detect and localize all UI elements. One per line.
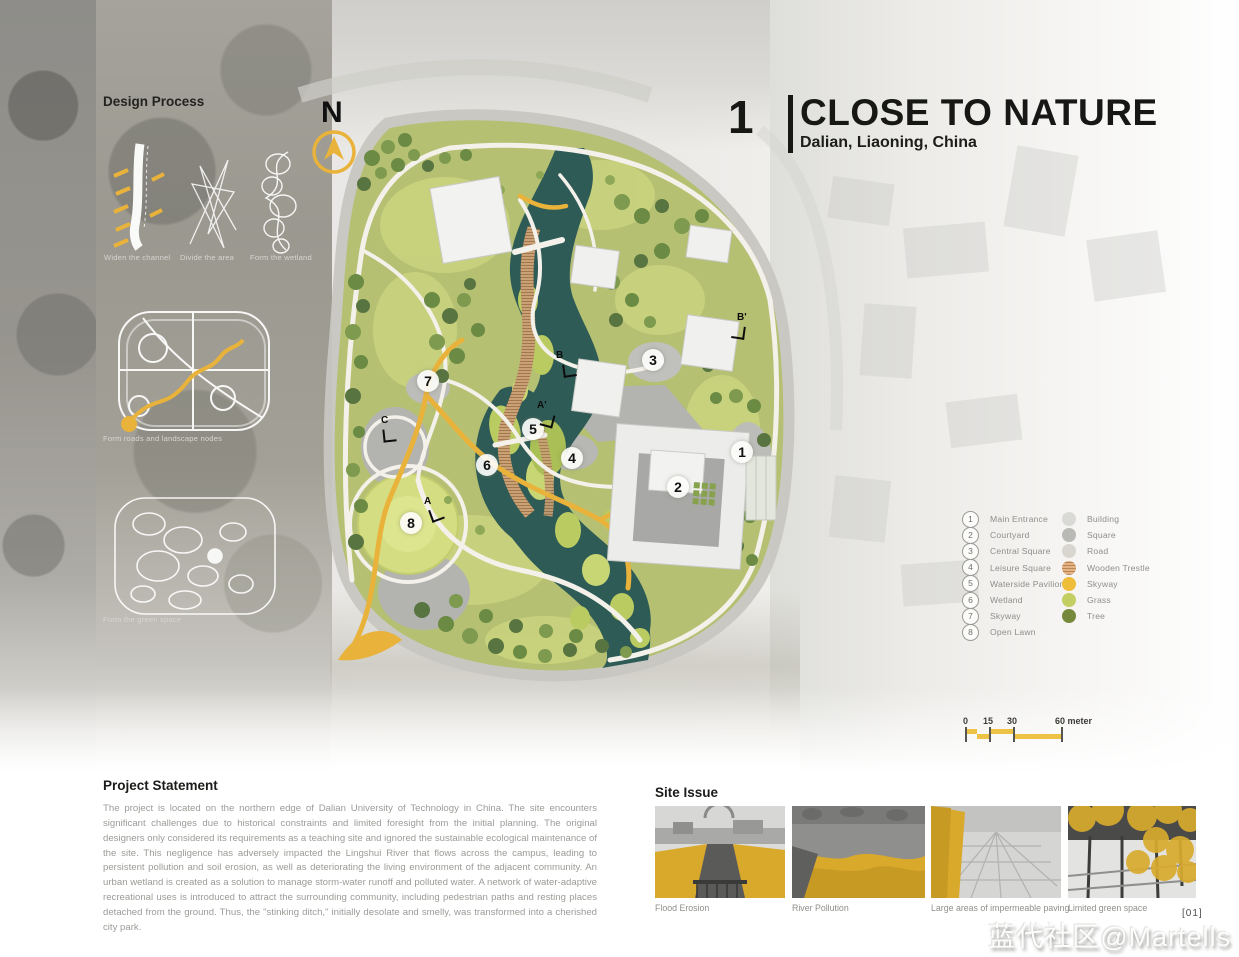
section-label-b-prime: B' bbox=[737, 312, 747, 323]
river-pollution-graphic bbox=[792, 806, 925, 898]
legend-item: 3Central Square bbox=[962, 543, 1064, 559]
scale-tick bbox=[965, 727, 967, 742]
watermark: 蓝代社区@Martells bbox=[988, 915, 1231, 954]
photo-flood-erosion bbox=[655, 806, 785, 898]
section-label-b: B bbox=[556, 350, 563, 361]
scale-segment bbox=[989, 729, 1013, 734]
map-marker-wetland: 6 bbox=[476, 454, 498, 476]
road-swatch bbox=[1062, 544, 1076, 558]
map-marker-central-square: 3 bbox=[642, 349, 664, 371]
legend-item: 1Main Entrance bbox=[962, 511, 1064, 527]
sketch-form-wetland bbox=[248, 146, 306, 256]
sketch-divide-area bbox=[178, 152, 242, 254]
sketch-caption: Widen the channel bbox=[104, 253, 170, 262]
map-marker-skyway: 7 bbox=[417, 370, 439, 392]
north-letter: N bbox=[321, 96, 343, 130]
legend-swatch-column: Building Square Road Wooden Trestle Skyw… bbox=[1062, 511, 1150, 624]
legend-item: 4Leisure Square bbox=[962, 560, 1064, 576]
section-bracket bbox=[731, 325, 746, 340]
grass-swatch bbox=[1062, 593, 1076, 607]
page-subtitle: Dalian, Liaoning, China bbox=[800, 134, 1158, 152]
greenhouse bbox=[746, 456, 776, 520]
map-marker-open-lawn: 8 bbox=[400, 512, 422, 534]
legend-swatch-item: Skyway bbox=[1062, 576, 1150, 592]
photo-caption: River Pollution bbox=[792, 903, 849, 913]
photo-caption: Flood Erosion bbox=[655, 903, 709, 913]
legend-item: 7Skyway bbox=[962, 608, 1064, 624]
site-issue-heading: Site Issue bbox=[655, 785, 718, 800]
photo-limited-green bbox=[1068, 806, 1196, 898]
legend-swatch-item: Building bbox=[1062, 511, 1150, 527]
presentation-board: N 1 CLOSE TO NATURE Dalian, Liaoning, Ch… bbox=[0, 0, 1239, 957]
legend-swatch-item: Wooden Trestle bbox=[1062, 560, 1150, 576]
sketch-green-space bbox=[103, 488, 293, 626]
design-process-heading: Design Process bbox=[103, 94, 204, 109]
scale-tick bbox=[1013, 727, 1015, 742]
wooden-trestle-swatch bbox=[1062, 561, 1076, 575]
photo-caption: Large areas of impermeable paving bbox=[931, 903, 1069, 913]
building-swatch bbox=[1062, 512, 1076, 526]
sketch-widen-channel bbox=[108, 140, 170, 252]
photo-river-pollution bbox=[792, 806, 925, 898]
legend-swatch-item: Grass bbox=[1062, 592, 1150, 608]
tree-swatch bbox=[1062, 609, 1076, 623]
impermeable-paving-graphic bbox=[931, 806, 1061, 898]
page-title: CLOSE TO NATURE bbox=[800, 94, 1158, 131]
title-block: CLOSE TO NATURE Dalian, Liaoning, China bbox=[800, 94, 1158, 152]
title-divider bbox=[788, 95, 793, 153]
limited-green-graphic bbox=[1068, 806, 1196, 898]
legend-swatch-item: Road bbox=[1062, 543, 1150, 559]
map-marker-courtyard: 2 bbox=[667, 476, 689, 498]
map-marker-leisure-square: 4 bbox=[561, 447, 583, 469]
legend-item: 6Wetland bbox=[962, 592, 1064, 608]
section-label-a: A bbox=[424, 496, 431, 507]
sketch-caption: Form the wetland bbox=[250, 253, 312, 262]
scale-segment bbox=[977, 734, 989, 739]
board-number: 1 bbox=[728, 90, 755, 144]
flood-erosion-graphic bbox=[655, 806, 785, 898]
north-arrow-icon bbox=[308, 126, 360, 178]
legend-swatch-item: Tree bbox=[1062, 608, 1150, 624]
photo-impermeable-paving bbox=[931, 806, 1061, 898]
square-swatch bbox=[1062, 528, 1076, 542]
scale-tick bbox=[989, 727, 991, 742]
legend-item: 2Courtyard bbox=[962, 527, 1064, 543]
section-bracket bbox=[562, 363, 577, 378]
sketch-caption: Divide the area bbox=[180, 253, 234, 262]
section-bracket bbox=[382, 428, 396, 442]
scale-tick bbox=[1061, 727, 1063, 742]
sketch-caption: Form roads and landscape nodes bbox=[103, 434, 222, 443]
sketch-caption: Form the green space bbox=[103, 615, 181, 624]
project-statement-body: The project is located on the northern e… bbox=[103, 802, 597, 936]
scale-segment bbox=[965, 729, 977, 734]
project-statement-heading: Project Statement bbox=[103, 778, 218, 793]
legend-item: 8Open Lawn bbox=[962, 624, 1064, 640]
section-label-c: C bbox=[381, 415, 388, 426]
legend-item: 5Waterside Pavilion bbox=[962, 576, 1064, 592]
legend-numbered-column: 1Main Entrance 2Courtyard 3Central Squar… bbox=[962, 511, 1064, 641]
sketch-roads-nodes bbox=[103, 298, 298, 448]
legend-swatch-item: Square bbox=[1062, 527, 1150, 543]
skyway-swatch bbox=[1062, 577, 1076, 591]
scale-bar: 0 15 30 60 meter bbox=[965, 716, 1105, 746]
skyway-plaza bbox=[338, 631, 402, 660]
map-marker-main-entrance: 1 bbox=[731, 441, 753, 463]
photo-caption: Limited green space bbox=[1068, 903, 1147, 913]
scale-segment bbox=[1013, 734, 1061, 739]
section-label-a-prime: A' bbox=[537, 400, 547, 411]
